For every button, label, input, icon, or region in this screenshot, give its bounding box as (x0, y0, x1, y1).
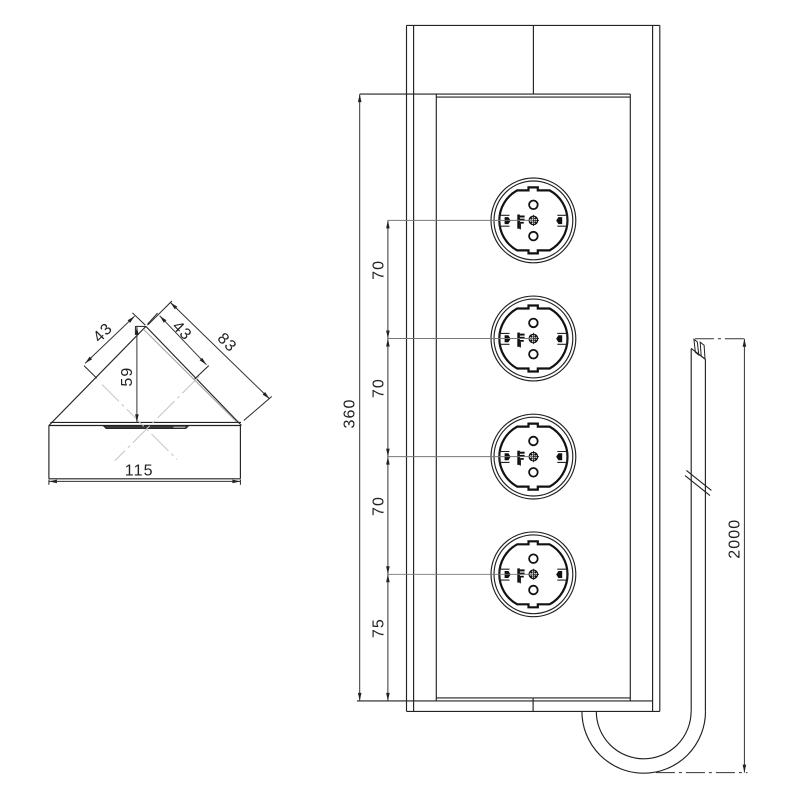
svg-text:75: 75 (370, 618, 387, 638)
svg-text:70: 70 (370, 378, 387, 398)
svg-text:43: 43 (90, 320, 116, 346)
svg-text:360: 360 (341, 399, 358, 429)
svg-text:115: 115 (125, 463, 154, 480)
svg-text:59: 59 (119, 367, 136, 387)
svg-text:2000: 2000 (726, 519, 743, 559)
svg-text:70: 70 (370, 496, 387, 516)
svg-text:83: 83 (214, 330, 240, 356)
svg-text:70: 70 (370, 260, 387, 280)
